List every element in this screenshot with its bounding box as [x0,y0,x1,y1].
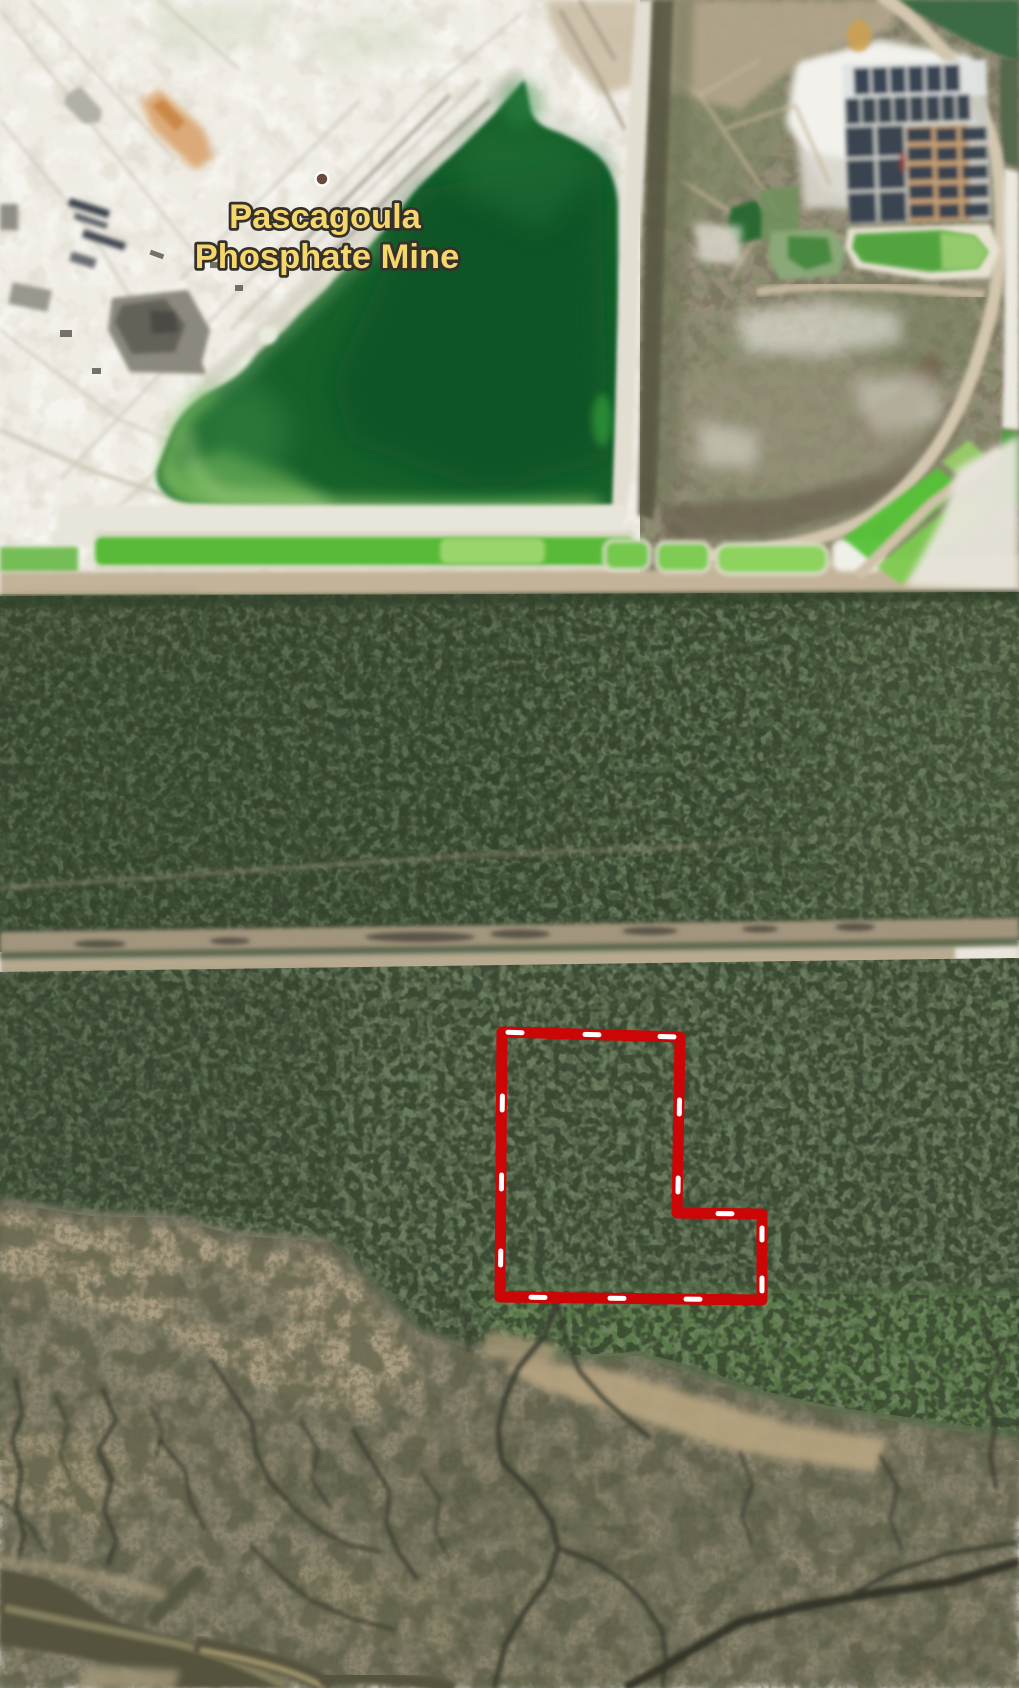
svg-text:Phosphate Mine: Phosphate Mine [195,238,460,276]
svg-text:Pascagoula: Pascagoula [229,198,422,236]
